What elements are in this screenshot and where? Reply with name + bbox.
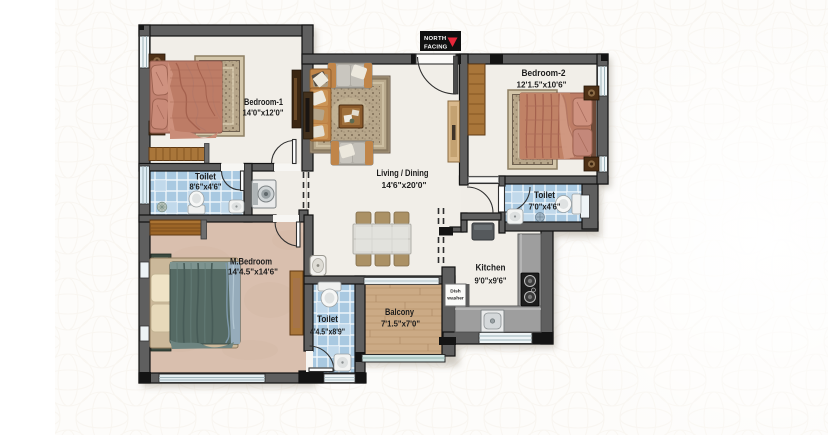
svg-text:Toilet: Toilet: [534, 189, 555, 200]
svg-text:FACING: FACING: [424, 45, 448, 51]
svg-text:8'6"x4'6": 8'6"x4'6": [190, 182, 222, 192]
svg-text:14'6"x20'0": 14'6"x20'0": [382, 180, 427, 190]
svg-text:7'1.5"x7'0": 7'1.5"x7'0": [381, 319, 420, 329]
svg-text:Dish: Dish: [450, 289, 460, 295]
svg-text:14'0"x12'0": 14'0"x12'0": [243, 108, 284, 118]
svg-text:Toilet: Toilet: [195, 171, 216, 182]
svg-text:NORTH: NORTH: [424, 36, 446, 42]
svg-text:Bedroom-1: Bedroom-1: [244, 96, 283, 107]
svg-text:9'0"x9'6": 9'0"x9'6": [475, 276, 507, 286]
svg-text:14'4.5"x14'6": 14'4.5"x14'6": [228, 267, 278, 277]
svg-text:Kitchen: Kitchen: [476, 262, 506, 273]
svg-text:Balcony: Balcony: [385, 306, 415, 317]
svg-text:4'4.5"x8'9": 4'4.5"x8'9": [310, 327, 345, 337]
svg-text:M.Bedroom: M.Bedroom: [230, 256, 272, 267]
svg-text:washer: washer: [446, 296, 464, 302]
svg-text:Toilet: Toilet: [317, 313, 338, 324]
svg-text:Bedroom-2: Bedroom-2: [522, 67, 566, 78]
svg-text:Living / Dining: Living / Dining: [377, 167, 429, 178]
svg-text:7'0"x4'6": 7'0"x4'6": [529, 202, 561, 212]
svg-text:12'1.5"x10'6": 12'1.5"x10'6": [517, 80, 567, 90]
